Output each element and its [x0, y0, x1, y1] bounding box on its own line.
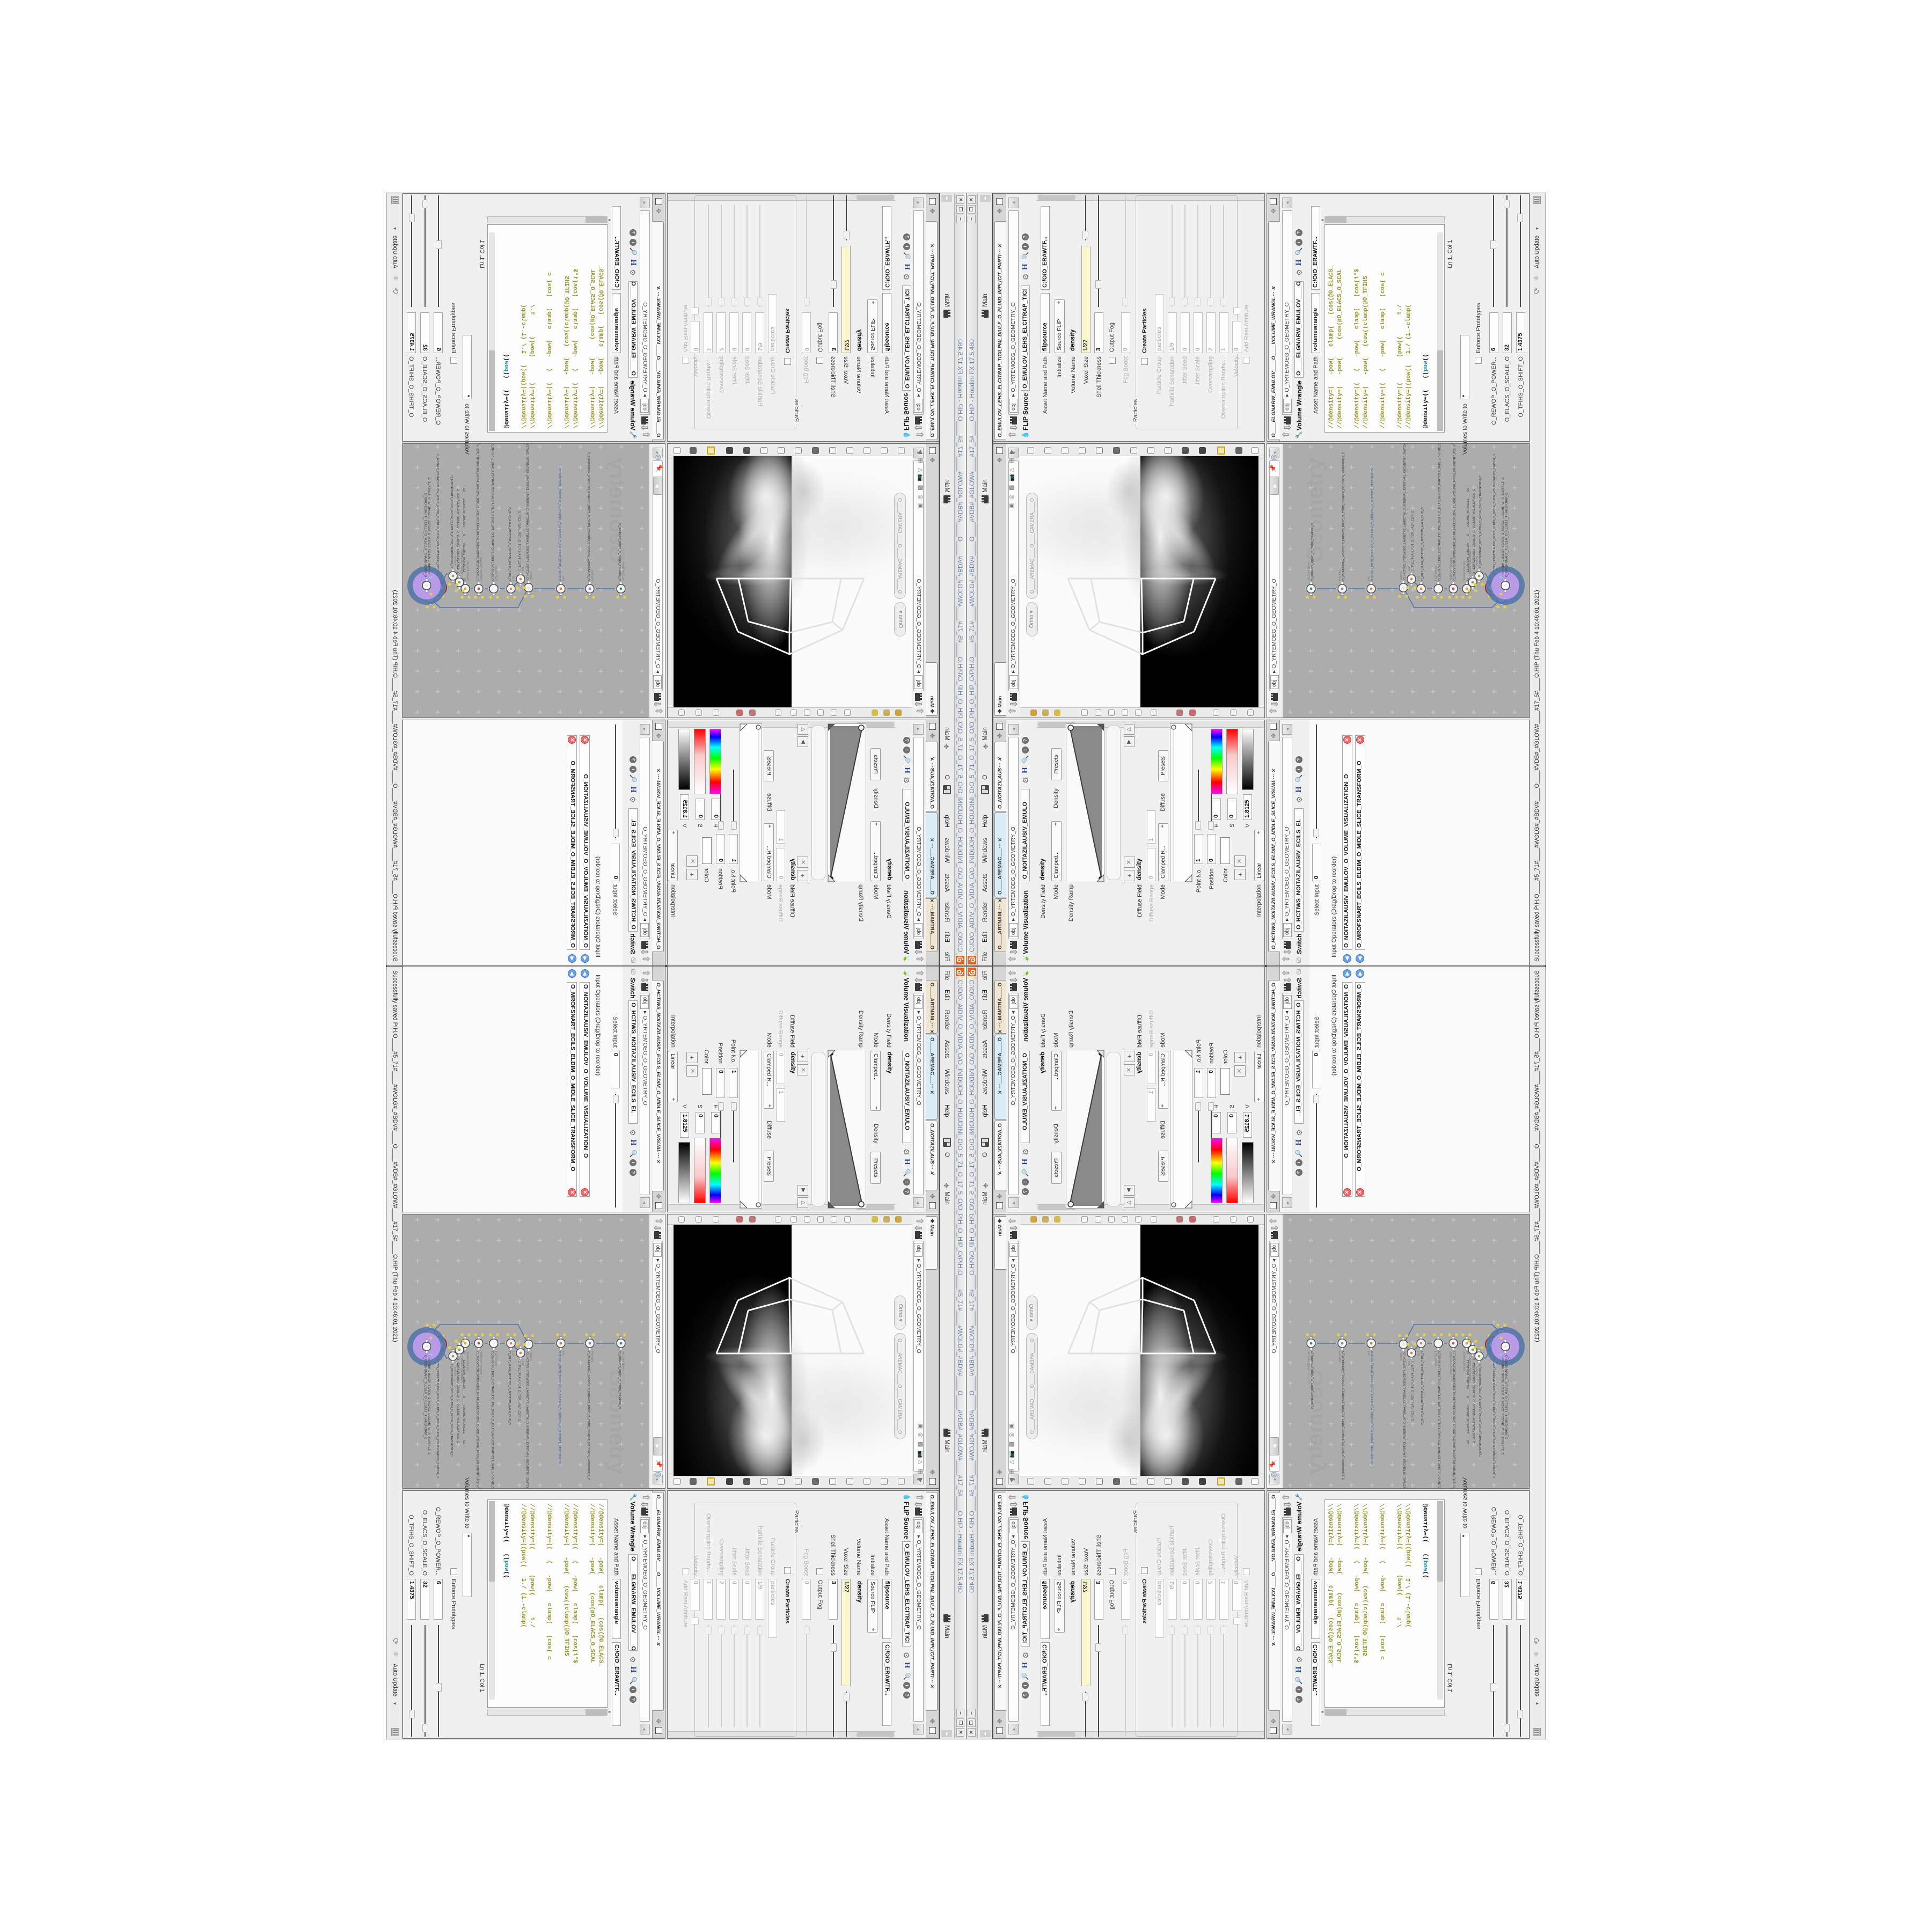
svg-text:BJO.M03_PETS_TREPOLS_O_3SUNEG_: BJO.M03_PETS_TREPOLS_O_3SUNEG_O_GENUS3_O…	[1371, 467, 1374, 581]
svg-text:O_EMARFERIW_NOGYLOP_EREHPS_EBU: O_EMARFERIW_NOGYLOP_EREHPS_EBUC_O_CUBE_S…	[1342, 1351, 1345, 1481]
svg-text:VDB from Polygons: VDB from Polygons	[1450, 1351, 1453, 1375]
svg-text:O_MROFSNART_TLUSER_O_RESULT_TR: O_MROFSNART_TLUSER_O_RESULT_TRANSFORM_O	[423, 493, 427, 577]
svg-text:Volume Wrangle: Volume Wrangle	[1463, 1351, 1466, 1371]
svg-text:O_MROFSNART_TLUSER_O_RESULT_TR: O_MROFSNART_TLUSER_O_RESULT_TRANSFORM_O	[1505, 1355, 1509, 1439]
svg-text:O_MROFSNART_TLUSER_O_RESULT_TR: O_MROFSNART_TLUSER_O_RESULT_TRANSFORM_O	[423, 1355, 427, 1439]
svg-text:an_CubeSphere: an_CubeSphere	[1307, 561, 1311, 581]
svg-text:Clip: Clip	[521, 1361, 524, 1366]
svg-text:VDB from Polygons: VDB from Polygons	[479, 557, 482, 581]
svg-text:BJO.M03_PETS_TREPOLS_O_3SUNEG_: BJO.M03_PETS_TREPOLS_O_3SUNEG_O_GENUS3_O…	[558, 467, 561, 581]
svg-text:O_MROFSNART_ECILS_ELDIM_O_MIDL: O_MROFSNART_ECILS_ELDIM_O_MIDLE_SLICE_TR…	[1479, 475, 1482, 568]
svg-text:O_PILC_FLAH_POT_O_TOP_HALF_CLI: O_PILC_FLAH_POT_O_TOP_HALF_CLIP_O	[1411, 1361, 1415, 1422]
svg-text:O_PILC_FLAH_MOTTOB_O_BOTTOM_HA: O_PILC_FLAH_MOTTOB_O_BOTTOM_HALF_CLIP_O	[508, 507, 511, 581]
svg-text:O_HCTIWS_NOITAZILAUSIV_ECILS_E: O_HCTIWS_NOITAZILAUSIV_ECILS_ELDIM_O_MID…	[1493, 1352, 1496, 1479]
svg-text:File: File	[1367, 576, 1371, 581]
svg-text:File: File	[1367, 1351, 1371, 1356]
svg-text:File: File	[561, 576, 565, 581]
svg-text:Transform: Transform	[453, 555, 457, 568]
svg-text:O_HCTIWS_YRTEMOEG_LANRETXE_LAN: O_HCTIWS_YRTEMOEG_LANRETXE_LANRETNI_O_IN…	[1403, 444, 1407, 580]
svg-text:VDB from Polygons: VDB from Polygons	[479, 1351, 482, 1375]
svg-text:Clip: Clip	[1408, 566, 1411, 571]
svg-text:O_MROFSNART_ECILS_ELDIM_O_MIDL: O_MROFSNART_ECILS_ELDIM_O_MIDLE_SLICE_TR…	[450, 475, 453, 568]
svg-text:O_SNOGYLOP_YRTEMOEG_MORF_EMULO: O_SNOGYLOP_YRTEMOEG_MORF_EMULOV_BDV_O_VD…	[475, 444, 479, 581]
svg-text:VDB from Polygons: VDB from Polygons	[1450, 557, 1453, 581]
svg-text:O_EMARFERIW_NOGYLOP_EREHPS_EBU: O_EMARFERIW_NOGYLOP_EREHPS_EBUC_O_CUBE_S…	[587, 451, 590, 581]
svg-text:Transform: Transform	[1475, 1364, 1479, 1377]
svg-text:Switch: Switch	[529, 1352, 532, 1360]
svg-text:Clip: Clip	[521, 566, 524, 571]
svg-text:FLIP Source: FLIP Source	[494, 566, 497, 581]
svg-text:Transform: Transform	[427, 1355, 430, 1368]
svg-text:O_EMULOV_LEHS_ELCITRAP_TICILPM: O_EMULOV_LEHS_ELCITRAP_TICILPMI_DIULF_O_…	[1438, 444, 1441, 581]
svg-text:O_MROFSNART_TLUSER_O_RESULT_TR: O_MROFSNART_TLUSER_O_RESULT_TRANSFORM_O	[1505, 493, 1509, 577]
svg-text:O_PILC_FLAH_MOTTOB_O_BOTTOM_HA: O_PILC_FLAH_MOTTOB_O_BOTTOM_HALF_CLIP_O	[1421, 507, 1424, 581]
svg-text:O_HCTIWS_YRTEMOEG_LANRETXE_LAN: O_HCTIWS_YRTEMOEG_LANRETXE_LANRETNI_O_IN…	[525, 1352, 529, 1488]
svg-text:O_EMARFERIW_NOGYLOP_EREHPS_EBU: O_EMARFERIW_NOGYLOP_EREHPS_EBUC_O_CUBE_S…	[1342, 451, 1345, 581]
svg-text:BJO.M03_PETS_TREPOLS_O_3SUNEG_: BJO.M03_PETS_TREPOLS_O_3SUNEG_O_GENUS3_O…	[1371, 1351, 1374, 1465]
svg-text:Clip: Clip	[1417, 576, 1421, 581]
svg-text:O_PILC_FLAH_MOTTOB_O_BOTTOM_HA: O_PILC_FLAH_MOTTOB_O_BOTTOM_HALF_CLIP_O	[508, 1351, 511, 1425]
svg-text:PolyWire: PolyWire	[590, 570, 594, 581]
svg-text:Volume Visualization: Volume Visualization	[1469, 1358, 1472, 1382]
svg-text:O_EREHPS_EBUC_O_CUBE_SPHERE_O: O_EREHPS_EBUC_O_CUBE_SPHERE_O	[618, 1351, 621, 1409]
svg-text:O_SNOGYLOP_YRTEMOEG_MORF_EMULO: O_SNOGYLOP_YRTEMOEG_MORF_EMULOV_BDV_O_VD…	[1453, 1351, 1457, 1488]
svg-text:Volume Wrangle: Volume Wrangle	[466, 1351, 469, 1371]
svg-text:an_CubeSphere: an_CubeSphere	[621, 1351, 625, 1371]
svg-text:Transform: Transform	[427, 563, 430, 577]
svg-text:O_HCTIWS_YRTEMOEG_LANRETXE_LAN: O_HCTIWS_YRTEMOEG_LANRETXE_LANRETNI_O_IN…	[1403, 1352, 1407, 1488]
svg-text:O_PILC_FLAH_POT_O_TOP_HALF_CLI: O_PILC_FLAH_POT_O_TOP_HALF_CLIP_O	[517, 510, 521, 571]
svg-text:Clip: Clip	[511, 576, 515, 581]
svg-text:Transform: Transform	[453, 1364, 457, 1377]
svg-text:O_HCTIWS_NOITAZILAUSIV_ECILS_E: O_HCTIWS_NOITAZILAUSIV_ECILS_ELDIM_O_MID…	[1493, 453, 1496, 580]
svg-text:O_EMULOV_LEHS_ELCITRAP_TICILPM: O_EMULOV_LEHS_ELCITRAP_TICILPMI_DIULF_O_…	[1438, 1351, 1441, 1488]
svg-text:Transform: Transform	[1502, 563, 1505, 577]
svg-text:O_EREHPS_EBUC_O_CUBE_SPHERE_O: O_EREHPS_EBUC_O_CUBE_SPHERE_O	[1311, 1351, 1314, 1409]
svg-text:O_PILC_FLAH_POT_O_TOP_HALF_CLI: O_PILC_FLAH_POT_O_TOP_HALF_CLIP_O	[517, 1361, 521, 1422]
svg-text:PolyWire: PolyWire	[1338, 1351, 1342, 1362]
svg-text:O_PILC_FLAH_MOTTOB_O_BOTTOM_HA: O_PILC_FLAH_MOTTOB_O_BOTTOM_HALF_CLIP_O	[1421, 1351, 1424, 1425]
svg-text:Volume Wrangle: Volume Wrangle	[466, 561, 469, 581]
svg-text:O_MROFSNART_ECILS_ELDIM_O_MIDL: O_MROFSNART_ECILS_ELDIM_O_MIDLE_SLICE_TR…	[450, 1364, 453, 1457]
svg-text:O_EMARFERIW_NOGYLOP_EREHPS_EBU: O_EMARFERIW_NOGYLOP_EREHPS_EBUC_O_CUBE_S…	[587, 1351, 590, 1481]
svg-text:Clip: Clip	[1417, 1351, 1421, 1356]
svg-text:PolyWire: PolyWire	[590, 1351, 594, 1362]
svg-text:Volume Visualization: Volume Visualization	[460, 1358, 463, 1382]
svg-text:BJO.M03_PETS_TREPOLS_O_3SUNEG_: BJO.M03_PETS_TREPOLS_O_3SUNEG_O_GENUS3_O…	[558, 1351, 561, 1465]
svg-text:Clip: Clip	[511, 1351, 515, 1356]
svg-text:an_CubeSphere: an_CubeSphere	[621, 561, 625, 581]
svg-text:O_PILC_FLAH_POT_O_TOP_HALF_CLI: O_PILC_FLAH_POT_O_TOP_HALF_CLIP_O	[1411, 510, 1415, 571]
svg-text:O_EREHPS_EBUC_O_CUBE_SPHERE_O: O_EREHPS_EBUC_O_CUBE_SPHERE_O	[618, 523, 621, 581]
svg-text:Volume Visualization: Volume Visualization	[460, 550, 463, 574]
svg-text:O_EMULOV_LEHS_ELCITRAP_TICILPM: O_EMULOV_LEHS_ELCITRAP_TICILPMI_DIULF_O_…	[491, 444, 494, 581]
svg-text:FLIP Source: FLIP Source	[494, 1351, 497, 1366]
svg-text:PolyWire: PolyWire	[1338, 570, 1342, 581]
svg-text:O_EREHPS_EBUC_O_CUBE_SPHERE_O: O_EREHPS_EBUC_O_CUBE_SPHERE_O	[1311, 523, 1314, 581]
svg-text:O_SNOGYLOP_YRTEMOEG_MORF_EMULO: O_SNOGYLOP_YRTEMOEG_MORF_EMULOV_BDV_O_VD…	[1453, 444, 1457, 581]
svg-text:Volume Visualization: Volume Visualization	[1469, 550, 1472, 574]
svg-text:Volume Wrangle: Volume Wrangle	[1463, 561, 1466, 581]
svg-text:O_SNOGYLOP_YRTEMOEG_MORF_EMULO: O_SNOGYLOP_YRTEMOEG_MORF_EMULOV_BDV_O_VD…	[475, 1351, 479, 1488]
svg-text:O_EMULOV_LEHS_ELCITRAP_TICILPM: O_EMULOV_LEHS_ELCITRAP_TICILPMI_DIULF_O_…	[491, 1351, 494, 1488]
svg-text:FLIP Source: FLIP Source	[1435, 1351, 1438, 1366]
svg-text:Switch: Switch	[1400, 1352, 1403, 1360]
svg-text:O_HCTIWS_YRTEMOEG_LANRETXE_LAN: O_HCTIWS_YRTEMOEG_LANRETXE_LANRETNI_O_IN…	[525, 444, 529, 580]
svg-text:File: File	[561, 1351, 565, 1356]
svg-text:O_HCTIWS_NOITAZILAUSIV_ECILS_E: O_HCTIWS_NOITAZILAUSIV_ECILS_ELDIM_O_MID…	[436, 453, 439, 580]
svg-text:FLIP Source: FLIP Source	[1435, 566, 1438, 581]
svg-text:O_HCTIWS_NOITAZILAUSIV_ECILS_E: O_HCTIWS_NOITAZILAUSIV_ECILS_ELDIM_O_MID…	[436, 1352, 439, 1479]
svg-text:an_CubeSphere: an_CubeSphere	[1307, 1351, 1311, 1371]
svg-text:Transform: Transform	[1475, 555, 1479, 568]
svg-text:Transform: Transform	[1502, 1355, 1505, 1368]
svg-text:Clip: Clip	[1408, 1361, 1411, 1366]
svg-text:Switch: Switch	[529, 572, 532, 580]
svg-text:Switch: Switch	[1400, 572, 1403, 580]
svg-text:O_MROFSNART_ECILS_ELDIM_O_MIDL: O_MROFSNART_ECILS_ELDIM_O_MIDLE_SLICE_TR…	[1479, 1364, 1482, 1457]
